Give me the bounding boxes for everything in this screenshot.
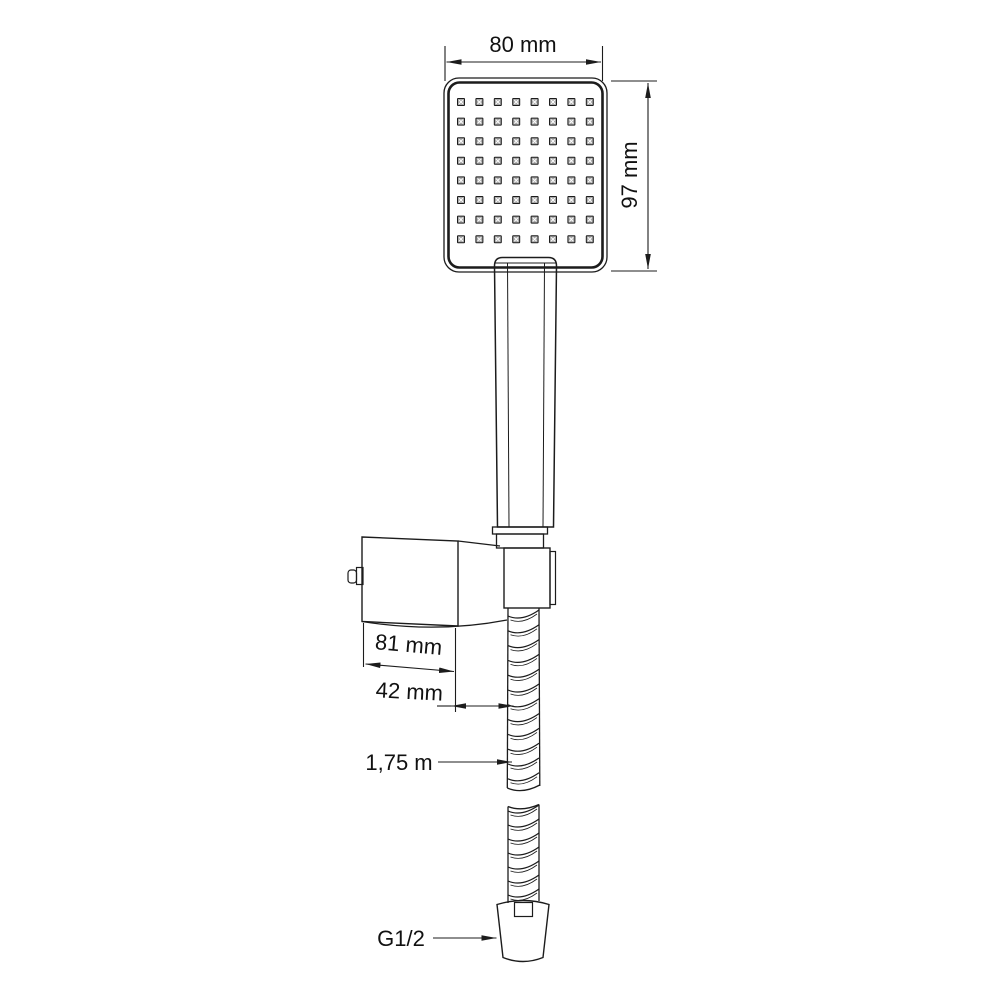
head-height-label: 97 mm [617,141,642,208]
hose-connector-cone [497,901,549,962]
hose-ring [508,875,539,883]
hose-break-edge-top [507,785,540,791]
hose-ring [508,640,539,648]
hose-upper-rings [508,610,539,784]
bracket-knob-cap [348,570,357,583]
shower-head-outer-edge [444,78,607,272]
shower-head-face-border [449,83,603,268]
hose-ring [508,625,539,633]
bracket-top-edge [458,541,500,546]
hose-ring [508,773,539,781]
bracket-bottom-curve [362,620,507,627]
dimension-diagram: 80 mm 97 mm 81 mm 42 mm 1,75 m G1/2 [0,0,1000,1000]
hose-length-callout: 1,75 m [365,750,512,775]
hose-ring [508,743,539,751]
dimension-annotations: 80 mm 97 mm 81 mm 42 mm 1,75 m G1/2 [364,32,658,951]
hose-ring [508,654,539,662]
bracket-width-label: 81 mm [374,629,443,660]
hose-ring [508,819,539,827]
shower-handle [495,258,557,528]
bracket-holder-cup [504,548,556,608]
dimension-line [366,664,455,672]
thread-size-callout: G1/2 [377,926,496,951]
drawing-canvas: 80 mm 97 mm 81 mm 42 mm 1,75 m G1/2 [0,0,1000,1000]
handle-step-upper [493,527,548,534]
hose-lower-rings [508,805,539,900]
head-width-label: 80 mm [489,32,556,57]
head-height-dimension: 97 mm [611,81,657,271]
thread-size-label: G1/2 [377,926,425,951]
hose-ring [508,758,539,766]
shower-hose-lower [508,805,539,904]
shower-hose-upper [507,608,540,791]
hose-ring [508,728,539,736]
hose-ring [508,833,539,841]
hose-ring [508,861,539,869]
hose-length-label: 1,75 m [365,750,432,775]
nozzle-grid [458,99,594,243]
handle-connector [493,527,548,548]
hose-upper-side-right [539,608,540,786]
hose-ring [508,669,539,677]
handle-facet-right [543,263,545,527]
connector-insert-notch [515,903,533,917]
bracket-front-face [362,537,458,626]
shower-head [444,78,607,272]
handle-facet-left [508,263,510,527]
hose-ring [508,714,539,722]
handle-step-lower [497,534,544,548]
hose-ring [508,847,539,855]
wall-bracket [348,537,507,627]
hose-upper-side-left [507,608,508,788]
bracket-offset-label: 42 mm [375,677,443,705]
bracket-offset-dimension: 42 mm [375,677,513,706]
connector-cone-body [497,901,549,962]
head-width-dimension: 80 mm [445,32,603,81]
hose-ring [508,889,539,897]
hose-ring [508,610,539,618]
handle-body [495,258,557,528]
hose-ring [508,684,539,692]
holder-cup-side [550,552,556,605]
holder-cup-front [504,548,550,608]
